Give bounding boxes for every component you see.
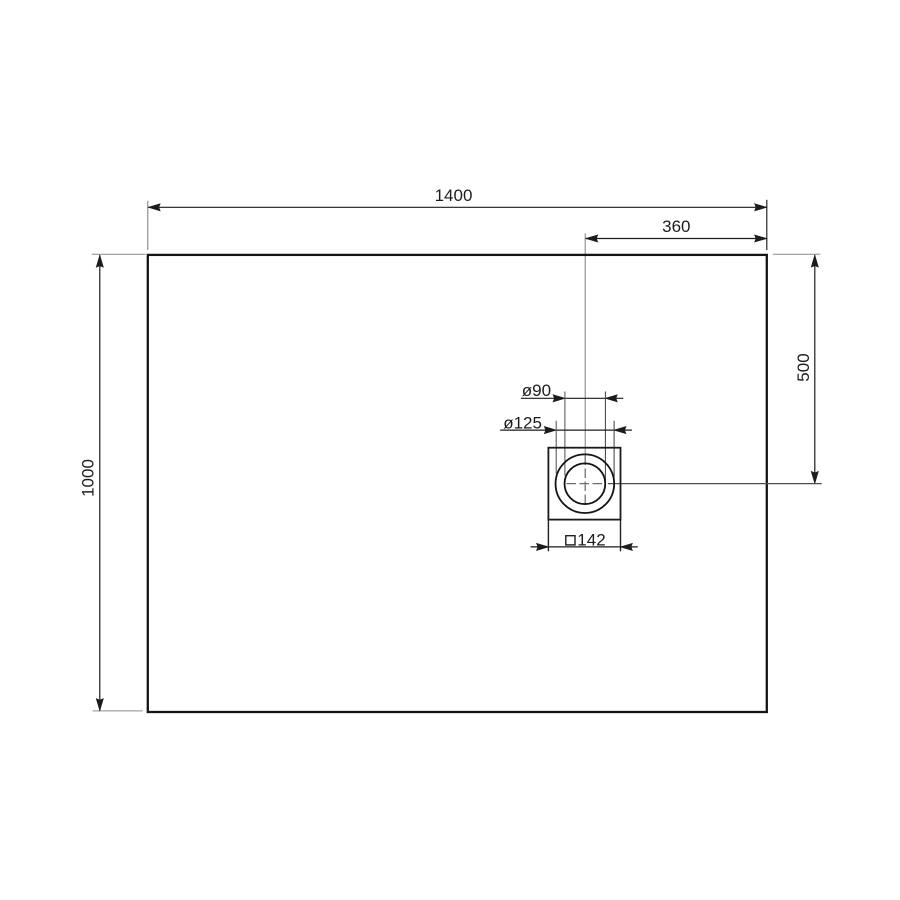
svg-text:500: 500 bbox=[794, 353, 813, 381]
svg-text:ø90: ø90 bbox=[522, 381, 551, 400]
svg-text:ø125: ø125 bbox=[503, 414, 542, 433]
svg-text:142: 142 bbox=[577, 530, 605, 549]
svg-text:360: 360 bbox=[662, 217, 690, 236]
svg-text:1400: 1400 bbox=[435, 186, 473, 205]
svg-text:1000: 1000 bbox=[78, 459, 97, 497]
